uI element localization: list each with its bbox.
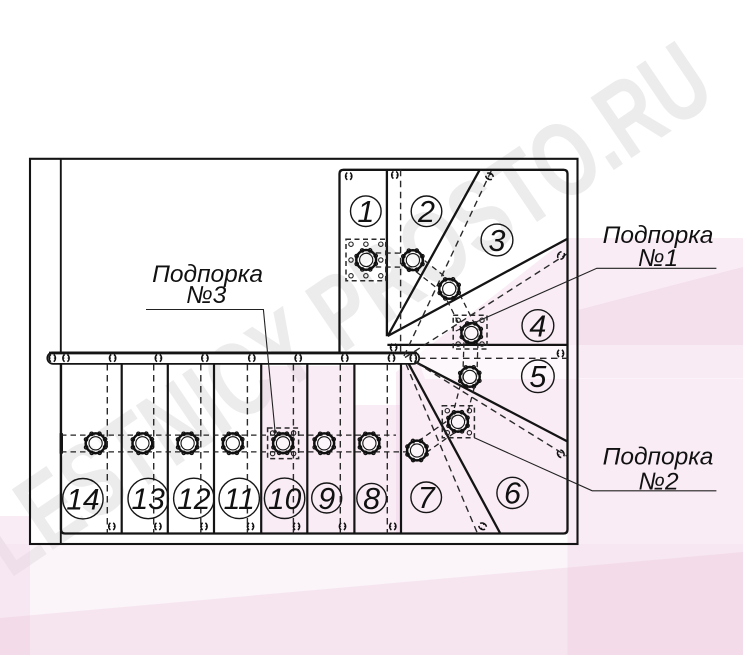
svg-text:№1: №1: [638, 245, 678, 272]
svg-text:13: 13: [132, 483, 166, 516]
svg-text:3: 3: [489, 224, 506, 258]
svg-text:11: 11: [224, 483, 255, 516]
svg-text:№3: №3: [186, 282, 227, 309]
svg-text:14: 14: [66, 483, 99, 516]
svg-text:8: 8: [363, 482, 380, 516]
svg-text:10: 10: [268, 483, 302, 516]
svg-text:Подпорка: Подпорка: [603, 443, 714, 470]
svg-text:№2: №2: [638, 468, 679, 495]
svg-text:9: 9: [318, 482, 335, 516]
svg-text:1: 1: [357, 195, 374, 229]
svg-text:2: 2: [417, 195, 435, 229]
svg-text:7: 7: [418, 481, 436, 515]
svg-text:12: 12: [177, 483, 211, 516]
svg-text:6: 6: [504, 477, 521, 511]
svg-text:5: 5: [529, 360, 547, 394]
svg-text:4: 4: [529, 309, 546, 343]
